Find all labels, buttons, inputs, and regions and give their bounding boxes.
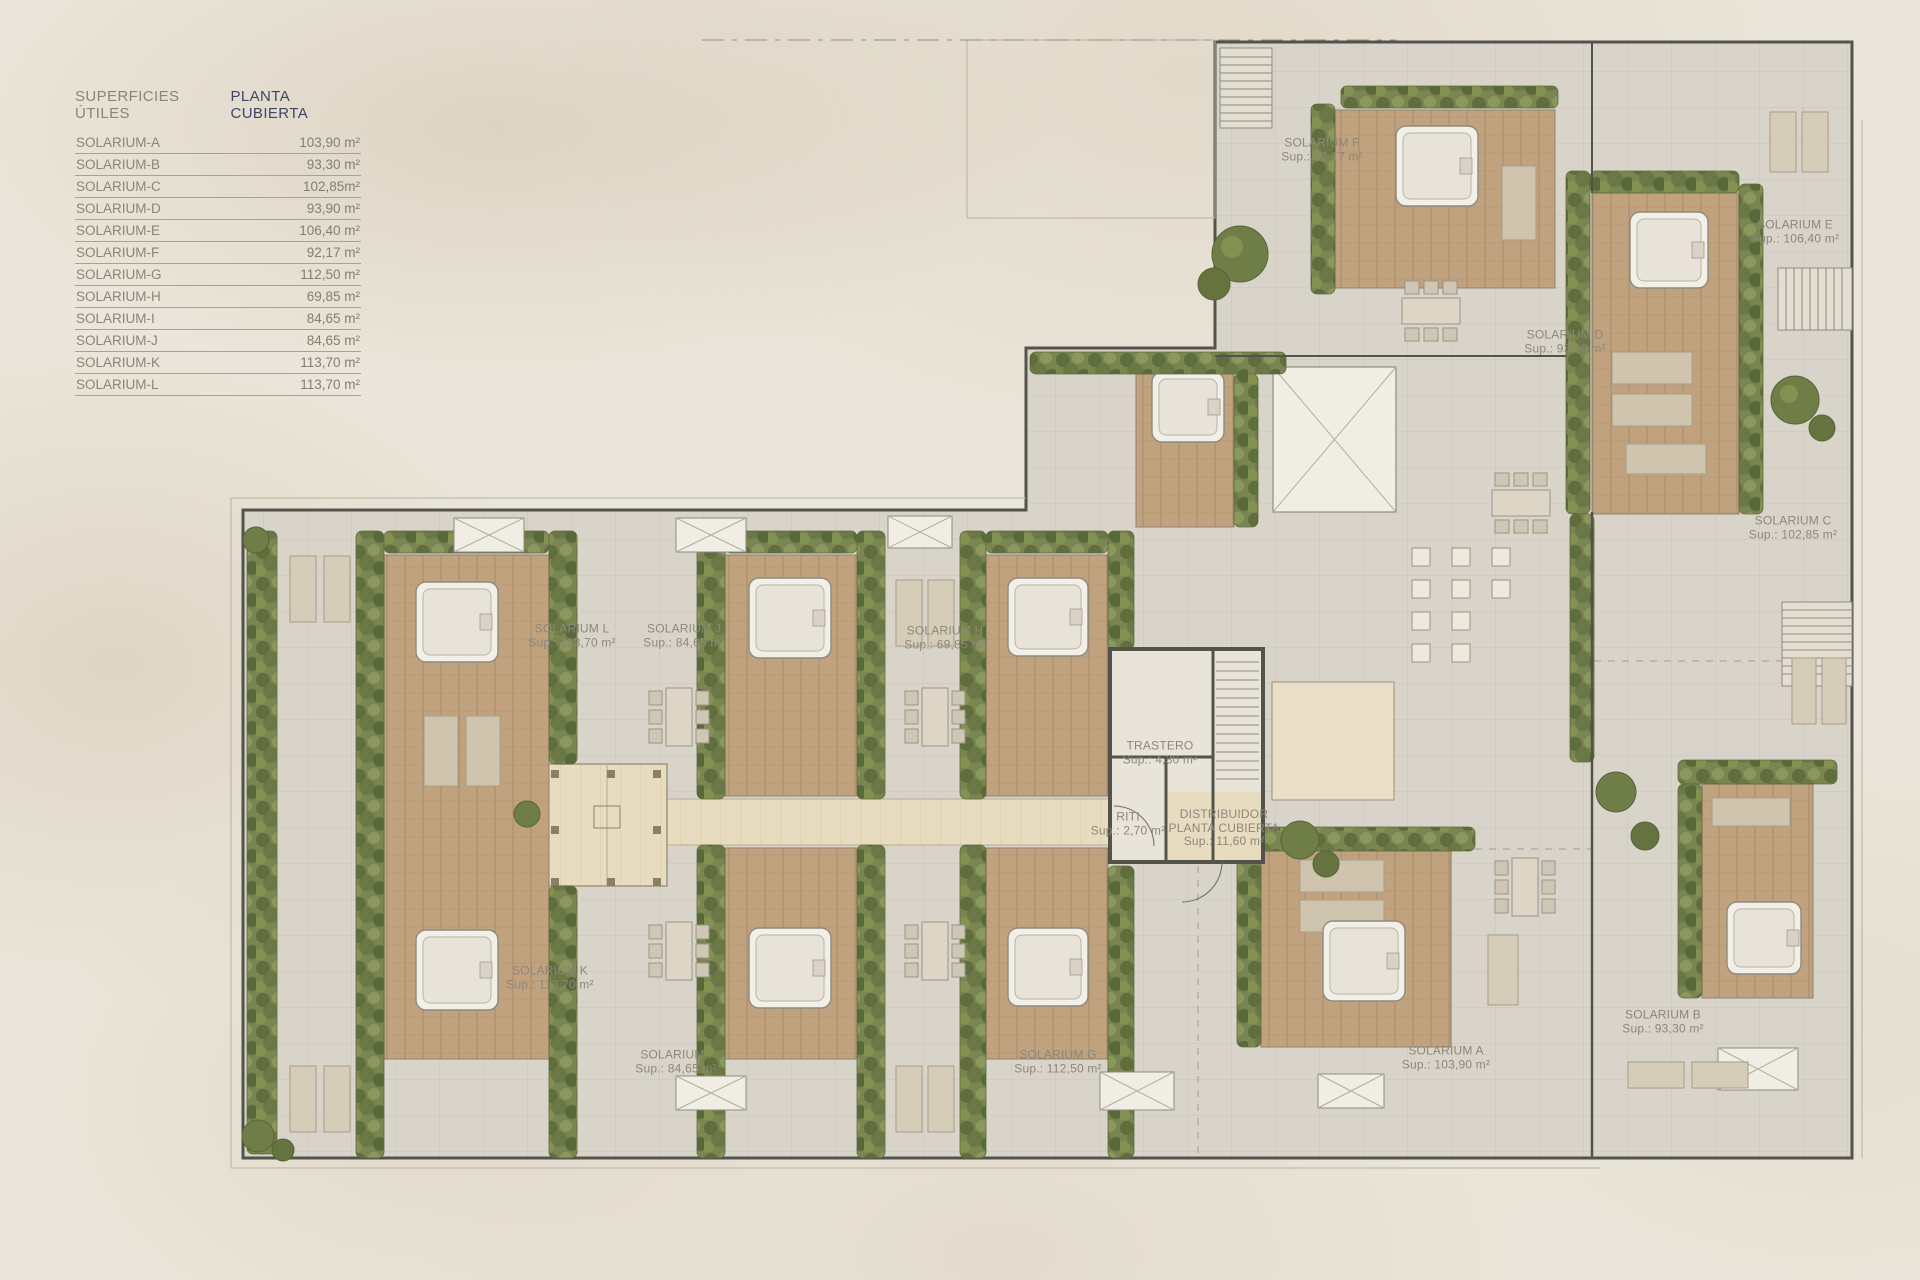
- legend-row: SOLARIUM-G112,50 m²: [75, 264, 361, 286]
- jacuzzi-f: [1396, 126, 1478, 206]
- legend-panel: SUPERFICIES ÚTILES PLANTA CUBIERTA SOLAR…: [75, 88, 361, 396]
- jacuzzi-b: [1727, 902, 1801, 974]
- legend-row-label: SOLARIUM-L: [76, 377, 159, 393]
- jacuzzi-d: [1152, 372, 1224, 442]
- legend-row-value: 84,65 m²: [307, 333, 360, 349]
- roof-hatch-icon: [676, 518, 746, 552]
- legend-row-value: 93,90 m²: [307, 201, 360, 217]
- legend-row-label: SOLARIUM-C: [76, 179, 161, 195]
- legend-row-label: SOLARIUM-H: [76, 289, 161, 305]
- legend-title-left: SUPERFICIES ÚTILES: [75, 88, 230, 122]
- legend-row-label: SOLARIUM-K: [76, 355, 160, 371]
- legend-row: SOLARIUM-J84,65 m²: [75, 330, 361, 352]
- legend-row-label: SOLARIUM-B: [76, 157, 160, 173]
- legend-row: SOLARIUM-I84,65 m²: [75, 308, 361, 330]
- legend-row-value: 113,70 m²: [300, 377, 360, 393]
- legend-row: SOLARIUM-C102,85m²: [75, 176, 361, 198]
- jacuzzi-j: [749, 578, 831, 658]
- pergola: [545, 764, 667, 886]
- legend-row-value: 103,90 m²: [299, 135, 360, 151]
- legend-row-value: 106,40 m²: [299, 223, 360, 239]
- dining-set: [905, 922, 965, 980]
- legend-row: SOLARIUM-F92,17 m²: [75, 242, 361, 264]
- dining-set: [1492, 473, 1550, 533]
- jacuzzi-l: [416, 582, 498, 662]
- roof-hatch-icon: [1318, 1074, 1384, 1108]
- stair-right-upper: [1778, 268, 1852, 330]
- legend-row-value: 112,50 m²: [300, 267, 360, 283]
- jacuzzi-g: [1008, 928, 1088, 1006]
- legend-row: SOLARIUM-A103,90 m²: [75, 135, 361, 154]
- jacuzzi-e: [1630, 212, 1708, 288]
- roof-hatch-icon: [1100, 1072, 1174, 1110]
- legend-row-label: SOLARIUM-G: [76, 267, 162, 283]
- roof-hatch-icon: [676, 1076, 746, 1110]
- dining-set: [649, 688, 709, 746]
- tree-icon: [514, 801, 540, 827]
- tree-icon: [243, 527, 269, 553]
- service-square: [1272, 682, 1394, 800]
- dining-set: [1402, 281, 1460, 341]
- roof-hatch-icon: [454, 518, 524, 552]
- legend-row: SOLARIUM-B93,30 m²: [75, 154, 361, 176]
- legend-row-label: SOLARIUM-E: [76, 223, 160, 239]
- legend-header: SUPERFICIES ÚTILES PLANTA CUBIERTA: [75, 88, 361, 122]
- legend-row: SOLARIUM-L113,70 m²: [75, 374, 361, 396]
- jacuzzi-h: [1008, 578, 1088, 656]
- floorplan-page: SUPERFICIES ÚTILES PLANTA CUBIERTA SOLAR…: [0, 0, 1920, 1280]
- stair-top-left: [1220, 48, 1272, 128]
- legend-row-value: 84,65 m²: [307, 311, 360, 327]
- dining-set: [649, 922, 709, 980]
- legend-row-value: 92,17 m²: [307, 245, 360, 261]
- legend-row-label: SOLARIUM-J: [76, 333, 158, 349]
- legend-row: SOLARIUM-D93,90 m²: [75, 198, 361, 220]
- legend-row: SOLARIUM-K113,70 m²: [75, 352, 361, 374]
- legend-row-value: 93,30 m²: [307, 157, 360, 173]
- legend-row-label: SOLARIUM-D: [76, 201, 161, 217]
- jacuzzi-a: [1323, 921, 1405, 1001]
- legend-title-right: PLANTA CUBIERTA: [230, 88, 361, 122]
- legend-row-label: SOLARIUM-A: [76, 135, 160, 151]
- elevator-shaft: [1273, 367, 1396, 512]
- dining-set: [905, 688, 965, 746]
- legend-row-label: SOLARIUM-I: [76, 311, 155, 327]
- legend-row: SOLARIUM-E106,40 m²: [75, 220, 361, 242]
- legend-row-label: SOLARIUM-F: [76, 245, 159, 261]
- legend-rows: SOLARIUM-A103,90 m²SOLARIUM-B93,30 m²SOL…: [75, 135, 361, 396]
- roof-hatch-icon: [888, 516, 952, 548]
- dining-set: [1495, 858, 1555, 916]
- legend-row-value: 69,85 m²: [307, 289, 360, 305]
- legend-row-value: 113,70 m²: [300, 355, 360, 371]
- legend-row-value: 102,85m²: [303, 179, 360, 195]
- jacuzzi-i: [749, 928, 831, 1008]
- jacuzzi-k: [416, 930, 498, 1010]
- legend-row: SOLARIUM-H69,85 m²: [75, 286, 361, 308]
